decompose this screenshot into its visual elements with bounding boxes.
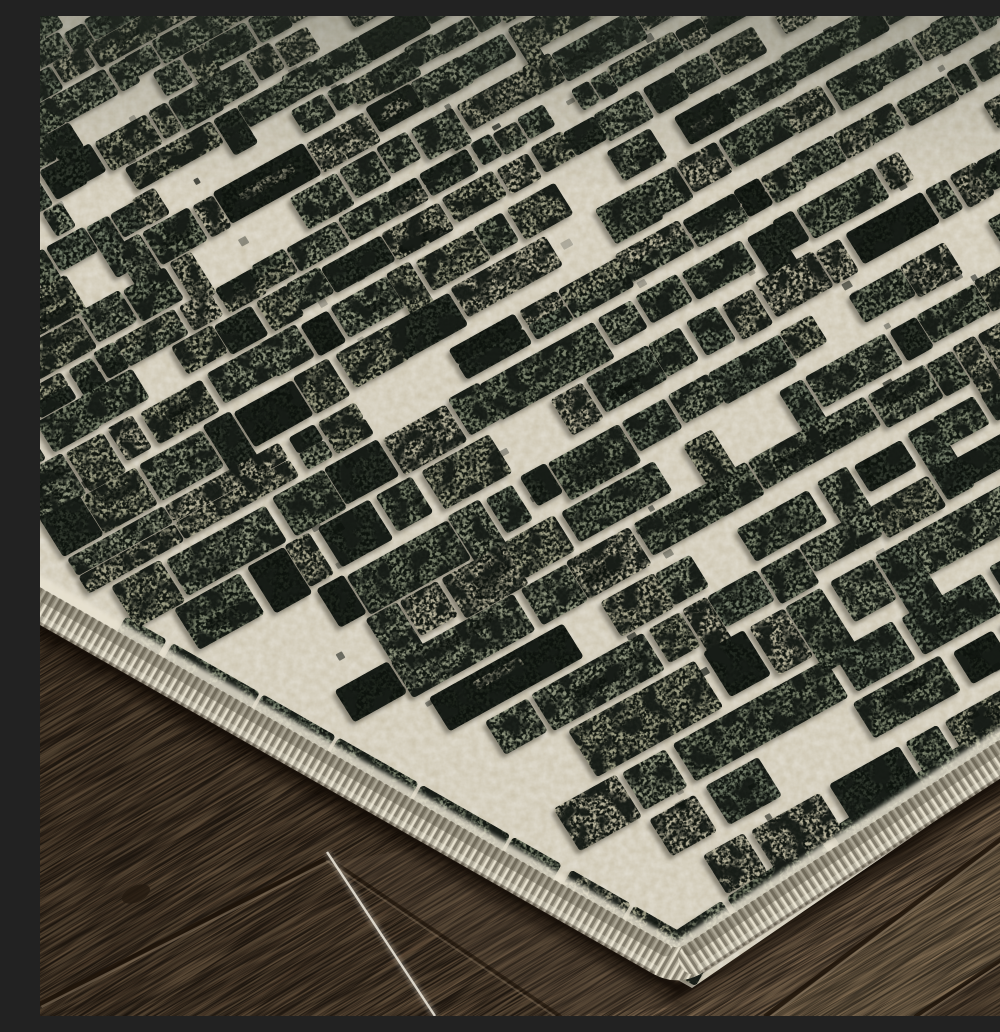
rug-far-shade [40, 16, 1000, 436]
scene-canvas [40, 16, 1000, 1016]
rug-product-photo [40, 16, 1000, 1016]
